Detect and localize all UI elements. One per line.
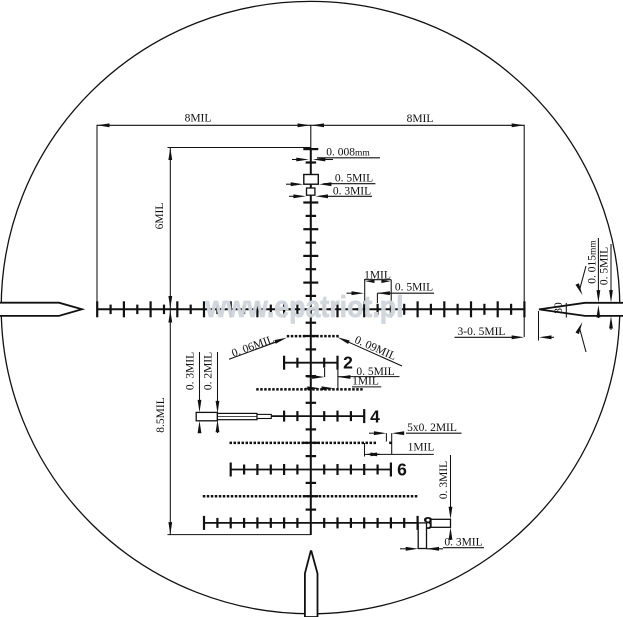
svg-text:8MIL: 8MIL [185, 113, 212, 125]
svg-text:5x0. 2MIL: 5x0. 2MIL [407, 422, 457, 434]
svg-text:8MIL: 8MIL [407, 113, 434, 125]
svg-text:4: 4 [370, 407, 380, 427]
svg-text:0. 3MIL: 0. 3MIL [444, 537, 482, 549]
svg-text:0. 015mm: 0. 015mm [587, 240, 599, 284]
svg-text:0. 3MIL: 0. 3MIL [333, 186, 371, 198]
svg-text:1MIL: 1MIL [352, 376, 379, 388]
svg-text:0. 5MIL: 0. 5MIL [335, 173, 373, 185]
svg-text:0. 2MIL: 0. 2MIL [203, 352, 215, 390]
svg-text:2: 2 [343, 353, 353, 373]
svg-text:3-0. 5MIL: 3-0. 5MIL [458, 326, 506, 338]
svg-text:30: 30 [553, 302, 565, 314]
svg-text:6: 6 [397, 460, 407, 480]
svg-text:6MIL: 6MIL [154, 203, 166, 230]
svg-text:www.epatriot.pl: www.epatriot.pl [205, 290, 404, 324]
svg-text:0. 3MIL: 0. 3MIL [185, 352, 197, 390]
svg-text:8.5MIL: 8.5MIL [155, 397, 167, 432]
svg-text:0. 008mm: 0. 008mm [326, 147, 370, 159]
svg-text:0. 5MIL: 0. 5MIL [598, 247, 610, 285]
svg-text:0. 3MIL: 0. 3MIL [438, 461, 450, 499]
svg-text:1MIL: 1MIL [408, 442, 435, 454]
